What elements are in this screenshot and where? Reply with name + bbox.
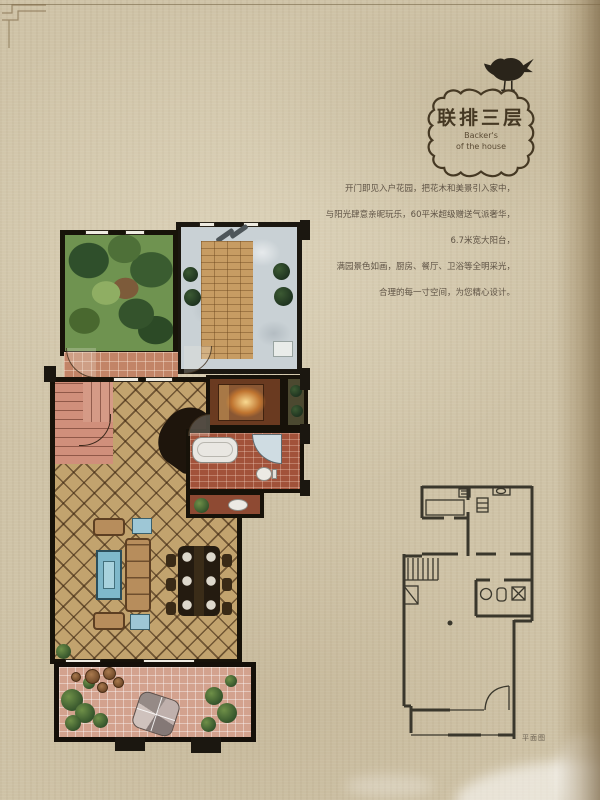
dining-table xyxy=(178,546,220,616)
outdoor-unit xyxy=(273,341,293,357)
key-plan-caption: 平面图 xyxy=(522,733,546,743)
description-line: 合理的每一寸空间，为您精心设计。 xyxy=(322,280,515,306)
dining-chair xyxy=(222,578,232,591)
wall-nub xyxy=(300,424,310,444)
description-text: 开门即见入户花园，把花木和美景引入家中， 与阳光肆意亲昵玩乐，60平米超级赠送气… xyxy=(322,176,515,306)
potted-plant xyxy=(273,263,290,280)
brick-path xyxy=(201,241,253,359)
staircase xyxy=(55,382,113,464)
entry-garden xyxy=(60,230,178,356)
parasol-umbrella xyxy=(130,689,182,738)
shrub xyxy=(65,715,81,731)
side-table xyxy=(132,518,152,534)
description-line: 6.7米宽大阳台， xyxy=(322,228,515,254)
corner-ornament xyxy=(0,0,46,48)
floor-plan-rendering xyxy=(38,218,310,754)
window xyxy=(145,377,173,382)
bed xyxy=(218,384,264,421)
powder-room xyxy=(186,491,264,518)
indoor-plant xyxy=(194,498,209,513)
light-reflection xyxy=(452,752,600,800)
bathroom xyxy=(186,429,304,493)
description-line: 与阳光肆意亲昵玩乐，60平米超级赠送气派奢华， xyxy=(322,202,515,228)
dining-chair xyxy=(166,578,176,591)
shrub xyxy=(201,717,216,732)
wall-nub xyxy=(300,480,310,496)
wall-nub xyxy=(115,737,145,751)
potted-plant xyxy=(184,289,201,306)
bench-mark xyxy=(229,224,248,240)
indoor-plant xyxy=(56,644,71,659)
dining-chair xyxy=(222,554,232,567)
wall-nub xyxy=(44,366,56,382)
key-plan-diagram xyxy=(398,482,546,752)
wicker-chair xyxy=(97,682,108,693)
wall-nub xyxy=(300,220,310,240)
armchair xyxy=(93,518,125,536)
basin xyxy=(228,499,248,511)
terrace xyxy=(54,662,256,742)
potted-plant xyxy=(183,267,198,282)
shrub xyxy=(93,713,108,728)
shrub xyxy=(225,675,237,687)
page-subtitle-en-2: of the house xyxy=(412,142,550,151)
window xyxy=(125,230,145,235)
page-title: 联排三层 xyxy=(412,103,550,130)
long-sofa xyxy=(125,538,151,612)
bedroom xyxy=(206,375,284,429)
bathtub xyxy=(192,437,238,463)
description-line: 满园景色如画，厨房、餐厅、卫浴等全明采光， xyxy=(322,254,515,280)
armchair xyxy=(93,612,125,630)
light-reflection xyxy=(345,775,435,797)
side-table xyxy=(130,614,150,630)
toilet-tank xyxy=(272,469,277,479)
light-reflection xyxy=(556,735,600,800)
wicker-chair xyxy=(113,677,124,688)
window xyxy=(85,230,109,235)
shrub xyxy=(217,703,237,723)
brochure-page: 联排三层 Backer's of the house 开门即见入户花园，把花木和… xyxy=(0,0,600,800)
coffee-table xyxy=(96,550,122,600)
window xyxy=(113,377,139,382)
description-line: 开门即见入户花园，把花木和美景引入家中， xyxy=(322,176,515,202)
wall-nub xyxy=(300,368,310,390)
window xyxy=(199,222,215,227)
staircase-rail xyxy=(79,414,111,446)
potted-plant xyxy=(274,287,293,306)
wicker-table xyxy=(71,672,81,682)
toilet xyxy=(256,467,272,481)
potted-plant xyxy=(291,405,303,417)
page-subtitle-en-1: Backer's xyxy=(412,131,550,140)
page-border-line xyxy=(0,4,600,5)
page-edge-shadow xyxy=(556,0,600,800)
wicker-chair xyxy=(85,669,100,684)
dining-chair xyxy=(222,602,232,615)
coffee-table-top xyxy=(103,561,115,589)
parasol-rib xyxy=(137,708,175,721)
dining-chair xyxy=(166,602,176,615)
dining-chair xyxy=(166,554,176,567)
bathtub-inner xyxy=(197,442,233,457)
shrub xyxy=(205,687,223,705)
wall-nub xyxy=(191,737,221,753)
corner-shower xyxy=(252,434,282,464)
